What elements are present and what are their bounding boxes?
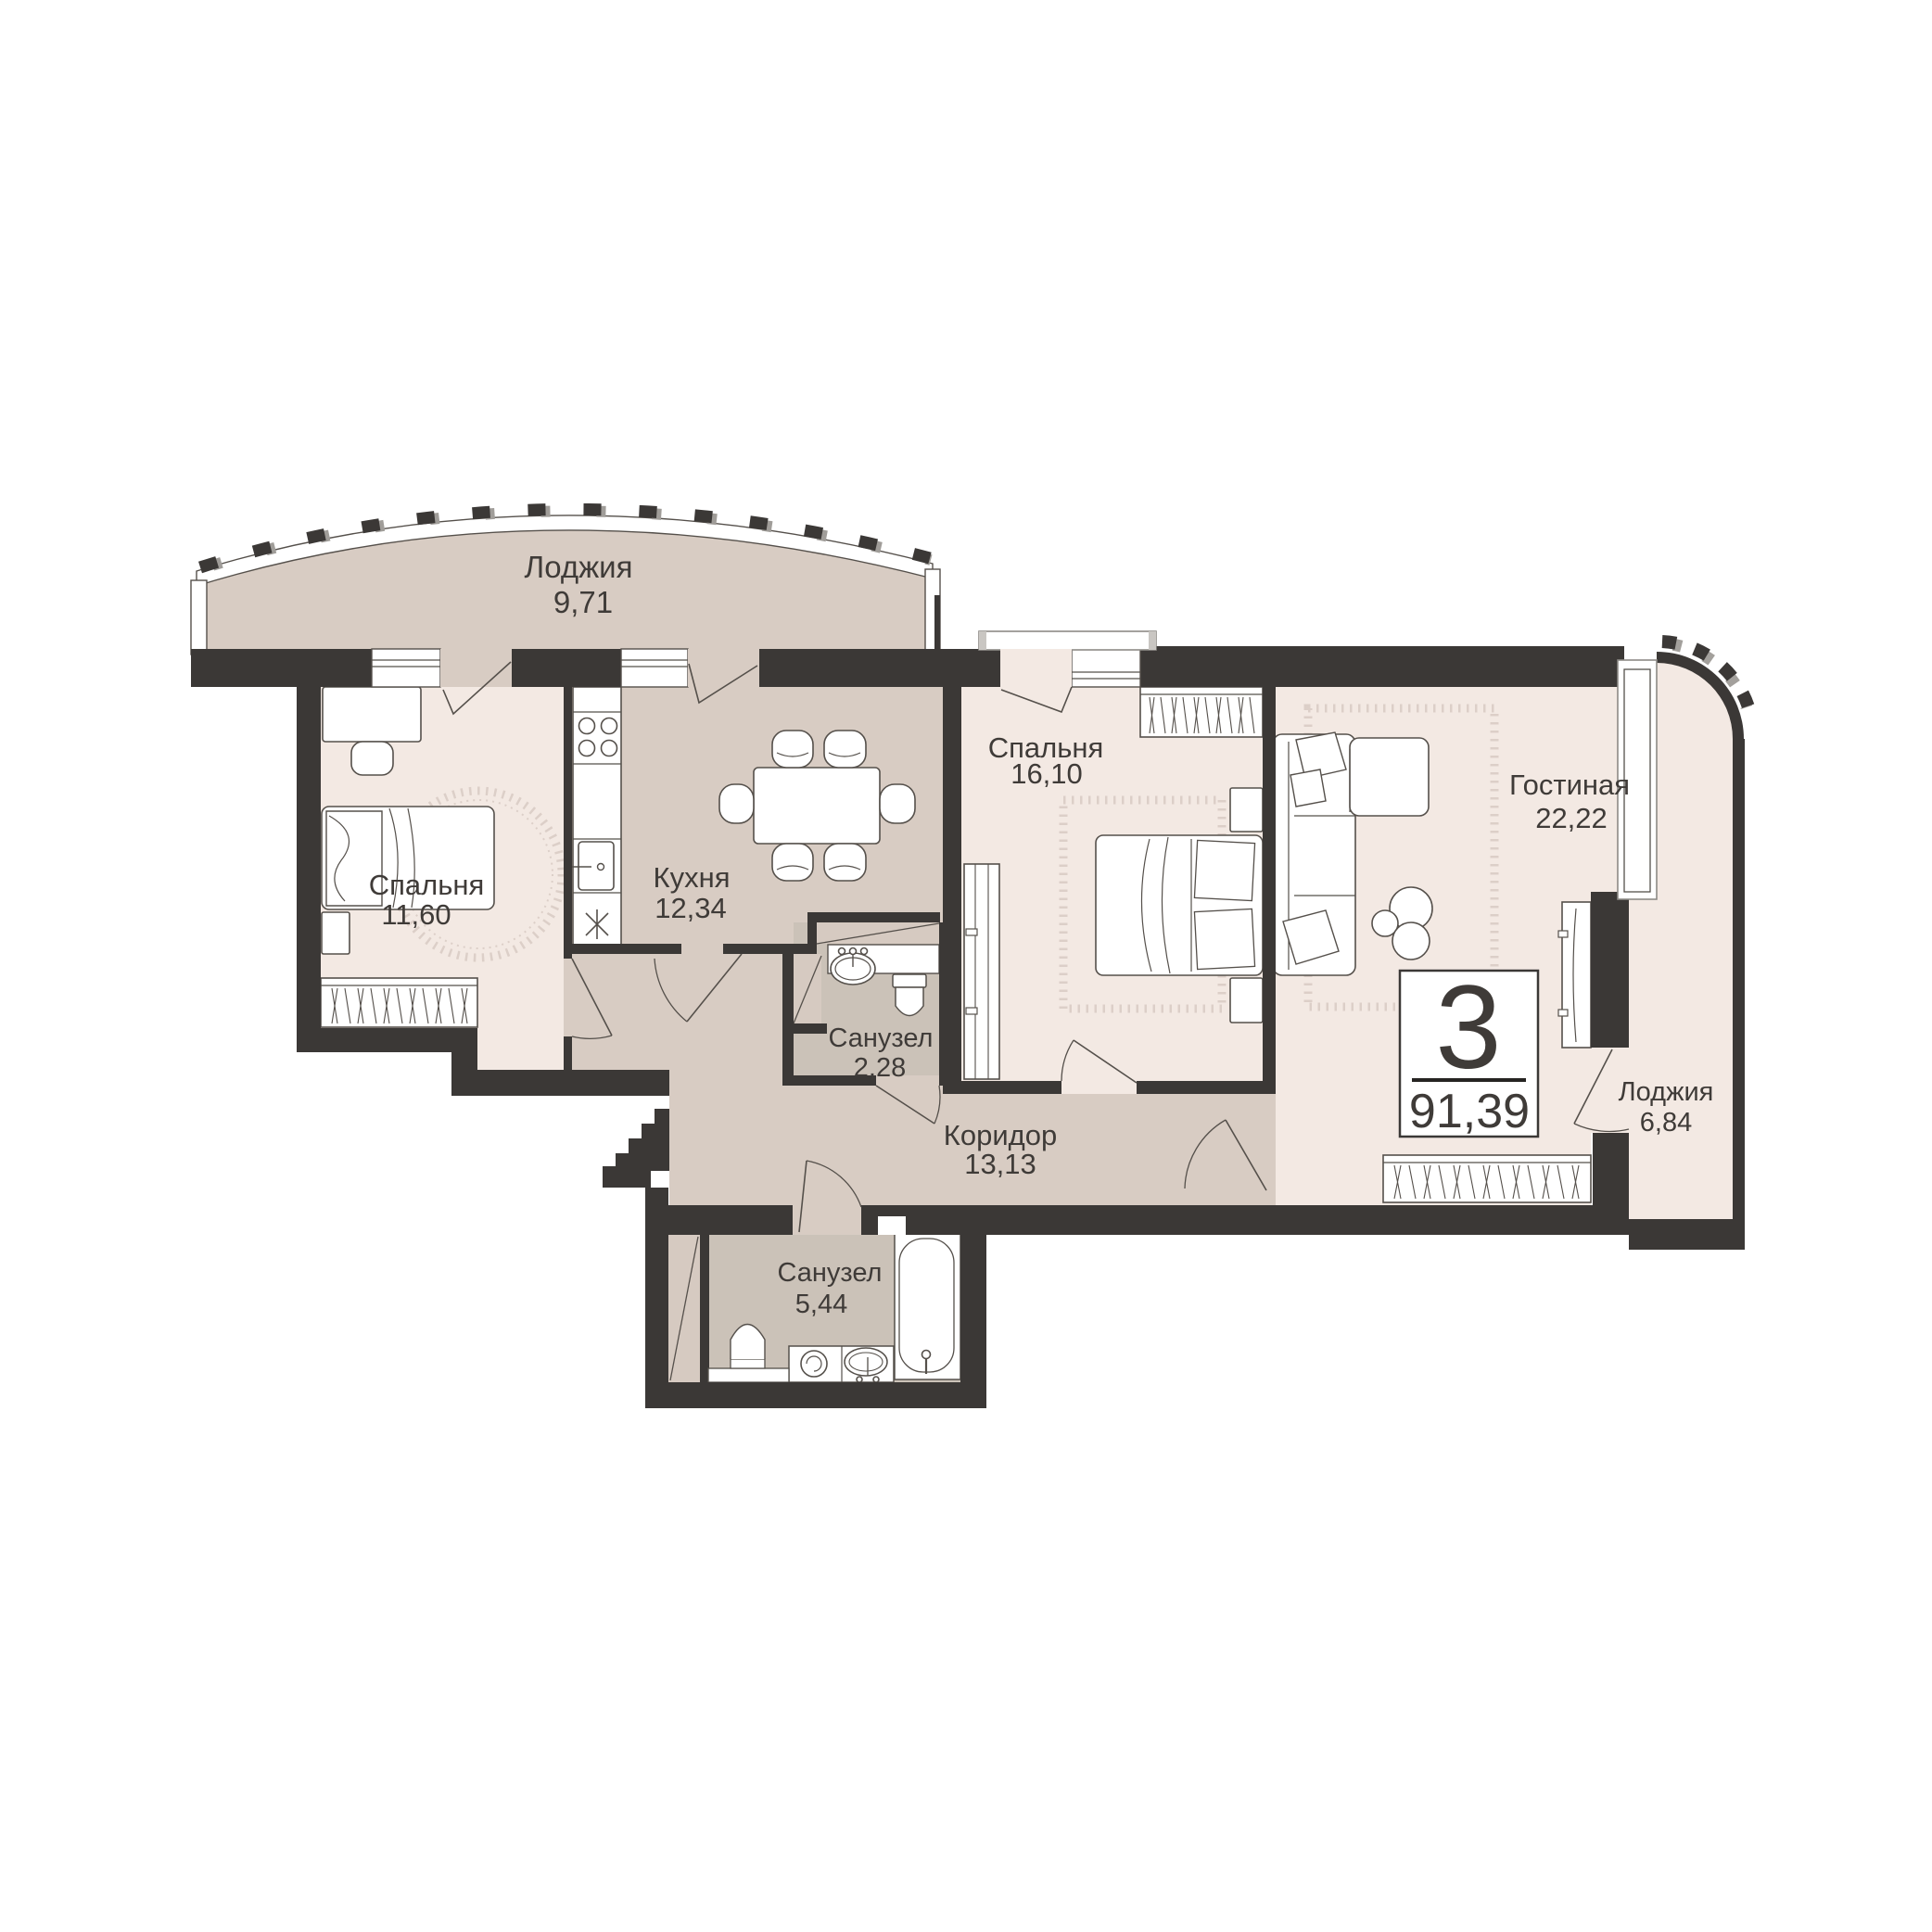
- svg-text:Спальня: Спальня: [369, 869, 485, 901]
- svg-text:22,22: 22,22: [1535, 802, 1608, 834]
- svg-text:Коридор: Коридор: [944, 1119, 1057, 1151]
- svg-text:Санузел: Санузел: [829, 1023, 934, 1053]
- svg-text:Лоджия: Лоджия: [1619, 1077, 1714, 1107]
- svg-text:91,39: 91,39: [1409, 1085, 1530, 1138]
- svg-text:11,60: 11,60: [381, 898, 451, 931]
- svg-text:Гостиная: Гостиная: [1509, 769, 1630, 801]
- svg-text:13,13: 13,13: [964, 1148, 1036, 1180]
- svg-text:Санузел: Санузел: [778, 1258, 883, 1288]
- svg-text:12,34: 12,34: [655, 892, 727, 924]
- svg-text:Лоджия: Лоджия: [525, 550, 633, 584]
- svg-text:5,44: 5,44: [795, 1290, 847, 1319]
- svg-text:2,28: 2,28: [854, 1053, 906, 1083]
- svg-text:16,10: 16,10: [1010, 757, 1083, 790]
- svg-text:Кухня: Кухня: [654, 861, 731, 894]
- svg-text:6,84: 6,84: [1640, 1108, 1692, 1138]
- svg-text:9,71: 9,71: [553, 585, 613, 619]
- svg-text:3: 3: [1435, 961, 1501, 1094]
